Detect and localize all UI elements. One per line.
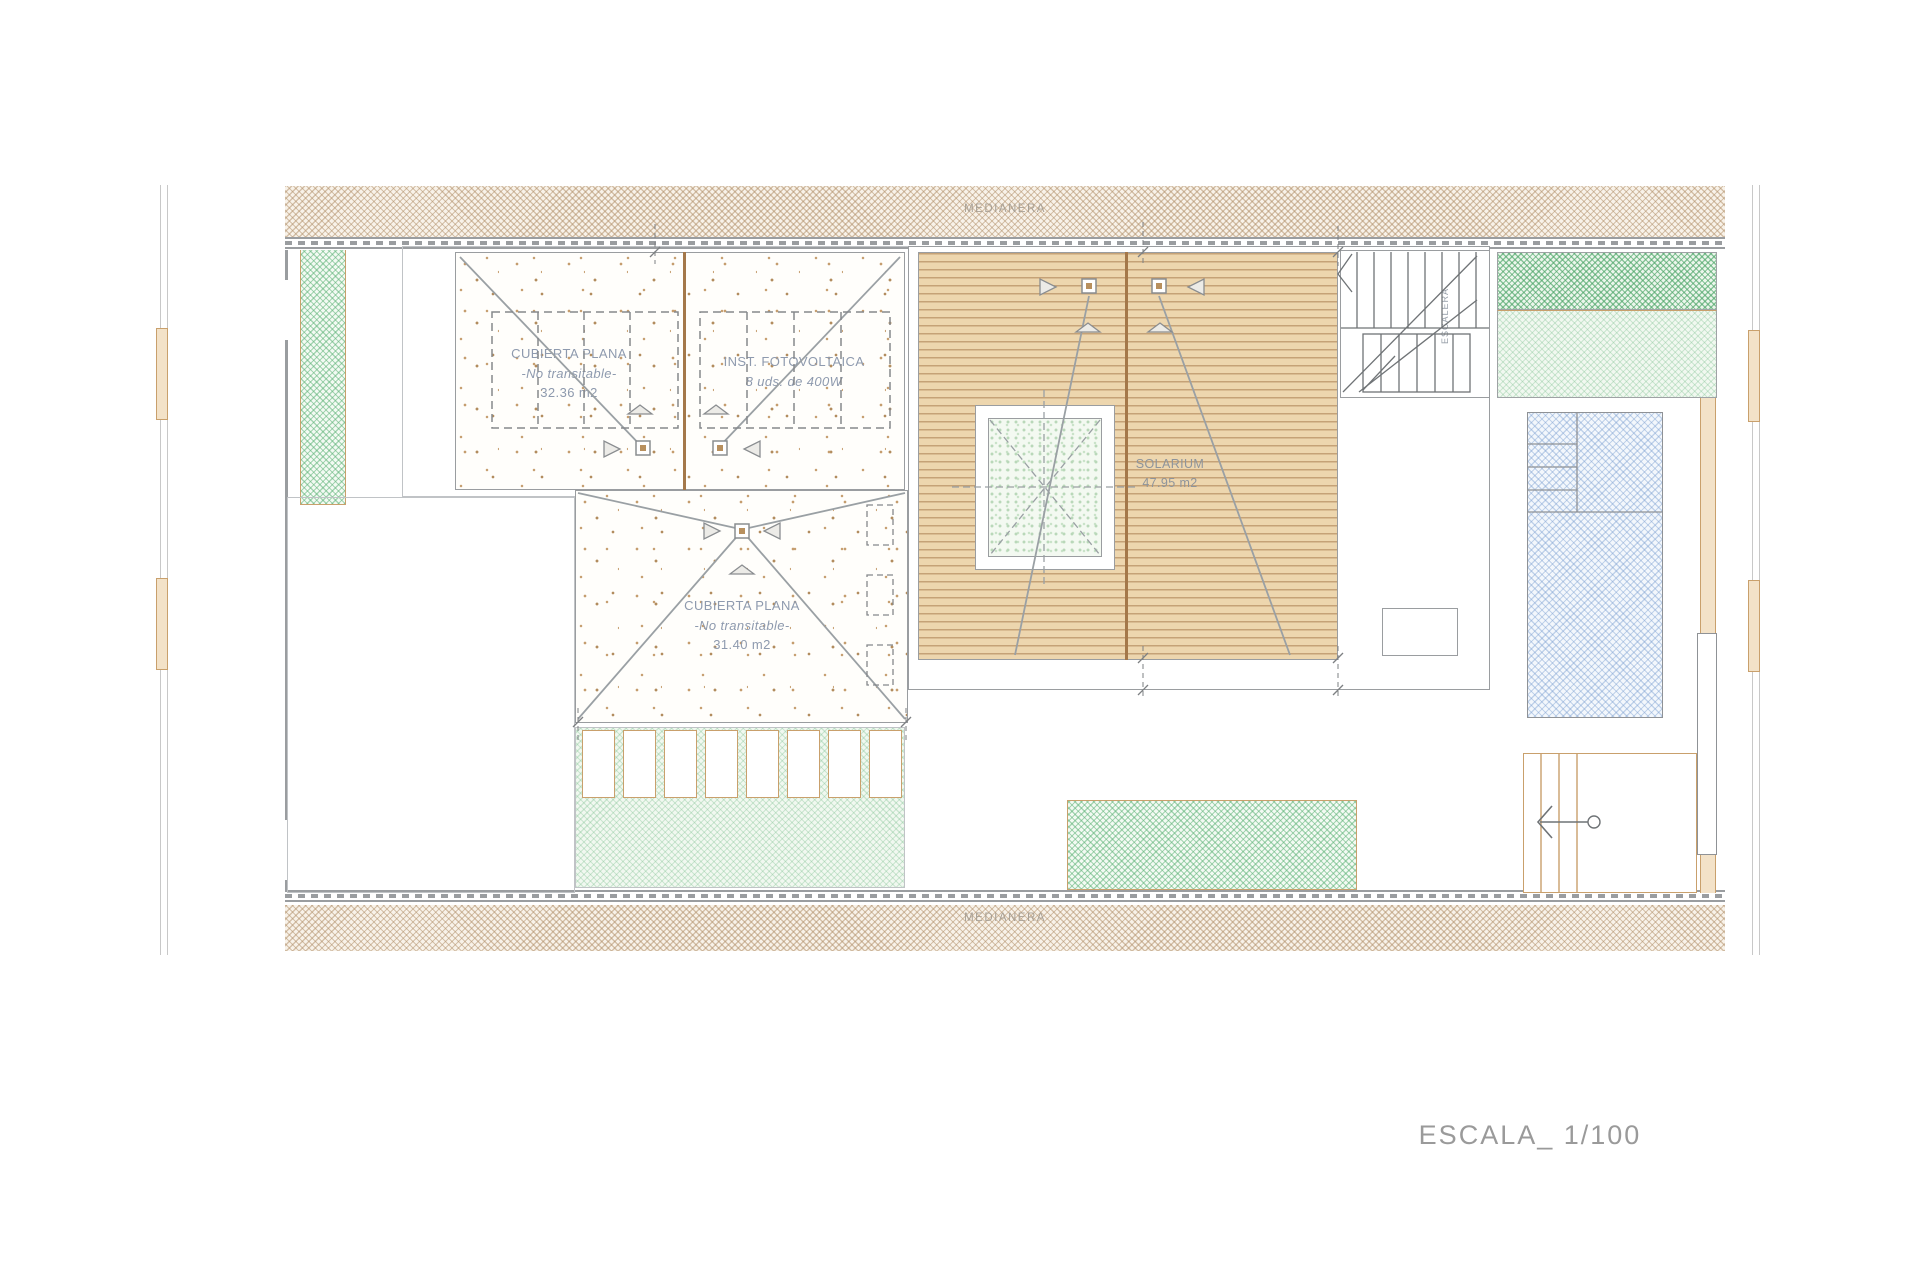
pergola-slat (746, 730, 779, 798)
party-wall-bottom-label: MEDIANERA (920, 912, 1090, 924)
pergola-slat (582, 730, 615, 798)
roof-divider-line (683, 252, 686, 490)
flat-roof-left-title: CUBIERTA PLANA (474, 344, 664, 364)
stair-block (1340, 250, 1490, 398)
left-facade-opening-upper (283, 280, 291, 340)
planting-bed-topright-lower (1497, 310, 1717, 398)
right-wall-detail-lower (1748, 580, 1760, 672)
plot-boundary-left-inner (167, 185, 168, 955)
flat-roof-center-subtitle: -No transitable- (647, 616, 837, 636)
scale-label: ESCALA_ 1/100 (1395, 1120, 1665, 1151)
plot-boundary-right (1752, 185, 1753, 955)
left-wall-detail-lower (156, 578, 168, 670)
stair-label: ESCALERA (1440, 282, 1456, 344)
exterior-stair-block (1523, 753, 1697, 893)
planting-bed-topright-upper (1497, 252, 1717, 310)
pool-area (1527, 412, 1663, 718)
plot-boundary-right-inner (1759, 185, 1760, 955)
pergola-slat (828, 730, 861, 798)
right-wall-detail-upper (1748, 330, 1760, 422)
party-wall-top-line (285, 237, 1725, 239)
plot-boundary-left (160, 185, 161, 955)
photovoltaic-label: INST. FOTOVOLTAICA 8 uds. de 400W (699, 352, 889, 391)
photovoltaic-subtitle: 8 uds. de 400W (699, 372, 889, 392)
flat-roof-center-title: CUBIERTA PLANA (647, 596, 837, 616)
flat-roof-left-label: CUBIERTA PLANA -No transitable- 32.36 m2 (474, 344, 664, 403)
flat-roof-center-area-value: 31.40 m2 (647, 635, 837, 655)
flat-roof-left-area-value: 32.36 m2 (474, 383, 664, 403)
party-wall-top-ticks (285, 241, 1725, 245)
right-facade-opening (1697, 633, 1717, 855)
party-wall-bottom-ticks (285, 894, 1725, 898)
solarium-label: SOLARIUM 47.95 m2 (1085, 455, 1255, 493)
party-wall-top-label: MEDIANERA (920, 203, 1090, 215)
frame-equipment-box (1382, 608, 1458, 656)
flat-roof-center-label: CUBIERTA PLANA -No transitable- 31.40 m2 (647, 596, 837, 655)
planting-strip-left (300, 250, 346, 505)
lower-terrace-room (287, 497, 575, 893)
photovoltaic-title: INST. FOTOVOLTAICA (699, 352, 889, 372)
solarium-title: SOLARIUM (1085, 455, 1255, 474)
roof-plan-canvas: MEDIANERA MEDIANERA ESCALERA (0, 0, 1920, 1280)
pergola-slat (787, 730, 820, 798)
party-wall-bottom-line (285, 900, 1725, 902)
pergola-slat (705, 730, 738, 798)
pergola-slat (664, 730, 697, 798)
left-wall-detail-upper (156, 328, 168, 420)
flat-roof-left-subtitle: -No transitable- (474, 364, 664, 384)
pergola-slat (869, 730, 902, 798)
solarium-area-value: 47.95 m2 (1085, 474, 1255, 493)
planter-bottom (1067, 800, 1357, 890)
pergola-slat (623, 730, 656, 798)
